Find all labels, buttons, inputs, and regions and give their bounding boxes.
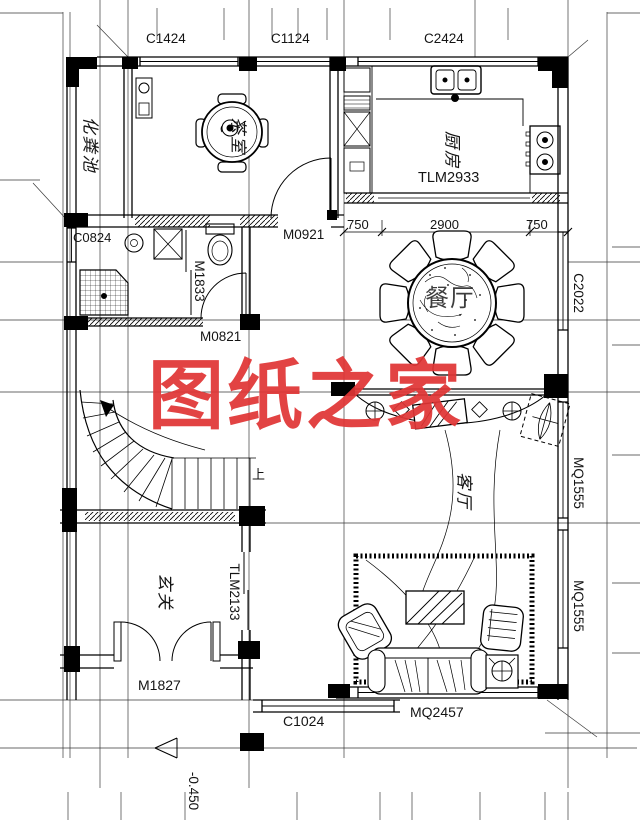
elevation-label: -0.450 (186, 772, 200, 810)
door-label-tlm2933: TLM2933 (418, 171, 479, 186)
tea-room-table (136, 78, 268, 172)
door-label-m0821: M0821 (200, 330, 241, 344)
window-label-c1124: C1124 (271, 32, 310, 46)
window-label-c0824: C0824 (73, 231, 111, 244)
dim-2900: 2900 (430, 218, 459, 231)
stairs-up-label: 上 (252, 468, 265, 481)
watermark-text: 图纸之家 (148, 356, 548, 436)
dim-750-left: 750 (347, 218, 369, 231)
dim-750-right: 750 (526, 218, 548, 231)
window-label-c2424: C2424 (424, 32, 464, 46)
door-label-m0921: M0921 (283, 228, 324, 242)
door-label-m1833: M1833 (192, 260, 206, 301)
window-label-c1424: C1424 (146, 32, 186, 46)
window-label-c1024: C1024 (283, 714, 324, 728)
window-label-c2022: C2022 (571, 273, 585, 313)
door-label-m1827: M1827 (138, 678, 181, 692)
window-label-mq2457: MQ2457 (410, 705, 464, 719)
room-label-tea-room: 茶室 (230, 117, 247, 155)
window-label-mq1555-lower: MQ1555 (571, 580, 585, 632)
floor-plan: C1424 C1124 C2424 化粪池 茶室 厨房 TLM2933 750 … (0, 0, 640, 823)
sofa-set (335, 556, 532, 694)
room-label-dining: 餐厅 (425, 287, 475, 311)
room-label-living: 客厅 (456, 472, 473, 510)
room-label-kitchen: 厨房 (444, 131, 461, 169)
window-label-mq1555-upper: MQ1555 (571, 457, 585, 509)
room-label-septic-tank: 化粪池 (82, 117, 99, 174)
door-label-tlm2133: TLM2133 (227, 563, 241, 620)
room-label-entry: 玄关 (157, 573, 174, 611)
